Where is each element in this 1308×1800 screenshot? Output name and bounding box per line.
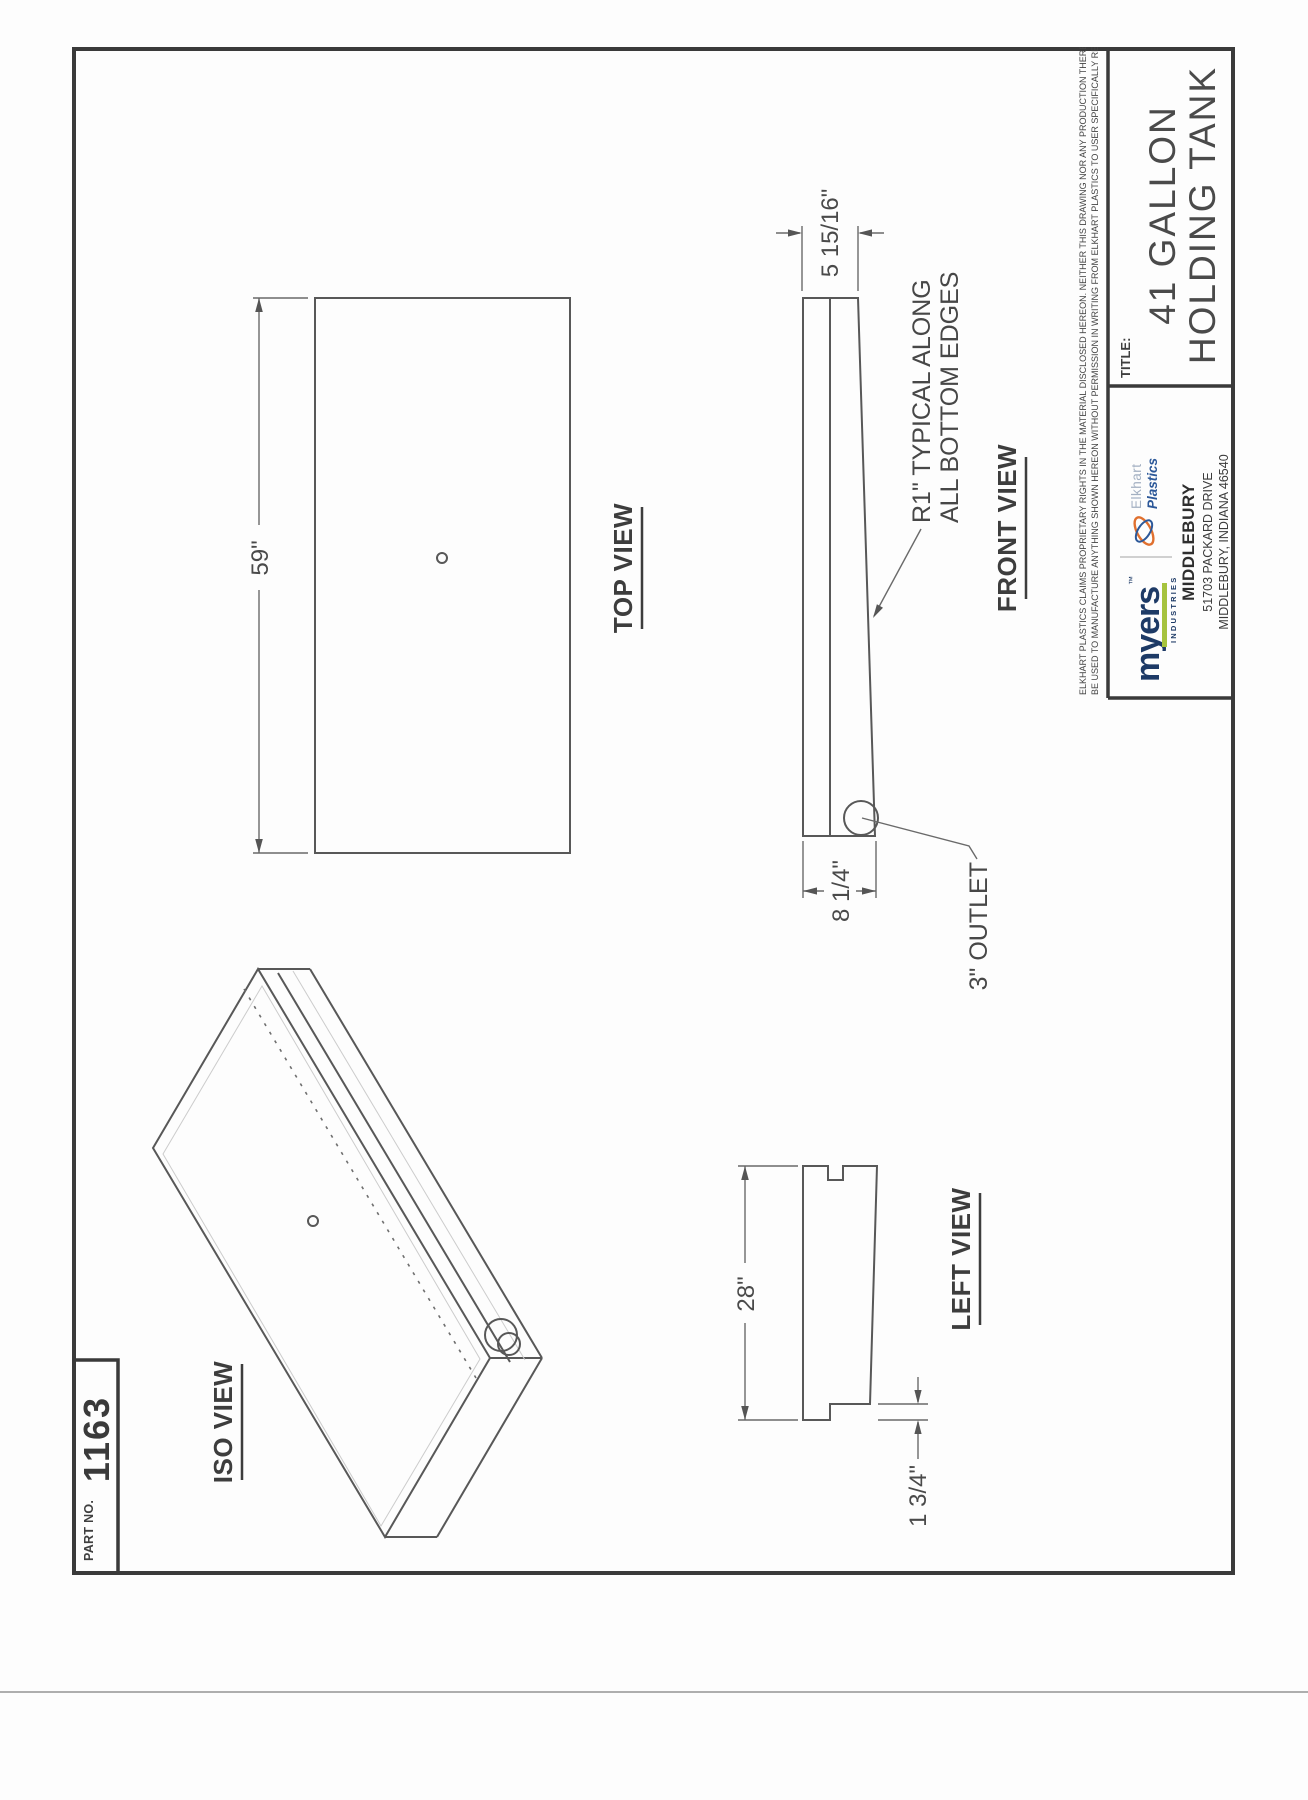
elkhart-plastics: Plastics: [1145, 457, 1160, 509]
myers-tm: ™: [1127, 576, 1137, 585]
address-line1: 51703 PACKARD DRIVE: [1201, 472, 1215, 611]
left-view: 28" 1 3/4" LEFT VIEW: [733, 1166, 980, 1527]
top-view-label: TOP VIEW: [608, 503, 638, 633]
address-line2: MIDDLEBURY, INDIANA 46540: [1217, 454, 1231, 629]
facility-name: MIDDLEBURY: [1179, 483, 1198, 601]
disclaimer-line1: ELKHART PLASTICS CLAIMS PROPRIETARY RIGH…: [1078, 47, 1088, 695]
radius-note-line1: R1" TYPICAL ALONG: [908, 279, 936, 523]
drawing-canvas: PART NO. 1163: [72, 47, 1235, 1575]
dimension-8-1-4: 8 1/4": [803, 841, 876, 922]
iso-view: ISO VIEW: [153, 969, 542, 1537]
elkhart-swirl-icon: [1131, 514, 1157, 547]
part-no-value: 1163: [76, 1396, 117, 1482]
dim-end-large-text: 8 1/4": [828, 860, 855, 922]
left-view-label: LEFT VIEW: [946, 1187, 976, 1330]
drawing-title-line2: HOLDING TANK: [1182, 66, 1223, 364]
scan-artifact-line: [0, 1691, 1308, 1693]
myers-industries: INDUSTRIES: [1169, 576, 1178, 643]
disclaimer-line2: BE USED TO MANUFACTURE ANYTHING SHOWN HE…: [1090, 47, 1100, 695]
outlet-note: 3" OUTLET: [862, 818, 993, 990]
title-block: ELKHART PLASTICS CLAIMS PROPRIETARY RIGH…: [1078, 47, 1233, 698]
dim-length-text: 59": [247, 540, 274, 575]
dim-lip-text: 1 3/4": [905, 1465, 932, 1527]
front-view-outlet: [844, 801, 878, 835]
drawing-sheet: PART NO. 1163: [72, 47, 1235, 1575]
myers-logo: myers: [1129, 587, 1167, 682]
iso-vent-hole: [308, 1216, 318, 1226]
radius-note: R1" TYPICAL ALONG ALL BOTTOM EDGES: [873, 272, 964, 618]
brand-logos: myers ™ INDUSTRIES Elkhart Plastics: [1120, 457, 1178, 682]
iso-view-label: ISO VIEW: [208, 1361, 238, 1483]
part-no-label: PART NO.: [82, 1500, 96, 1561]
front-view-label: FRONT VIEW: [992, 444, 1022, 612]
dimension-28: 28": [733, 1166, 798, 1420]
dim-end-small-text: 5 15/16": [817, 189, 844, 278]
dimension-5-15-16: 5 15/16": [776, 189, 884, 291]
sheet-frame: [74, 49, 1233, 1573]
part-number-box: PART NO. 1163: [74, 1360, 118, 1573]
dimension-59: 59": [247, 298, 308, 853]
front-view: 8 1/4" 5 15/16" R1" TYPICAL ALONG: [776, 189, 1026, 991]
myers-green-swoosh: [1162, 583, 1167, 647]
drawing-title-line1: 41 GALLON: [1142, 105, 1183, 325]
elkhart-name: Elkhart: [1129, 463, 1144, 509]
radius-note-line2: ALL BOTTOM EDGES: [936, 272, 964, 523]
top-view-vent-hole: [437, 553, 447, 563]
dim-width-text: 28": [733, 1276, 760, 1311]
top-view: 59" TOP VIEW: [247, 298, 642, 853]
outlet-note-text: 3" OUTLET: [965, 862, 993, 990]
scanned-drawing-page: PART NO. 1163: [0, 0, 1308, 1800]
title-label: TITLE:: [1118, 338, 1133, 378]
dimension-1-3-4: 1 3/4": [878, 1377, 932, 1527]
